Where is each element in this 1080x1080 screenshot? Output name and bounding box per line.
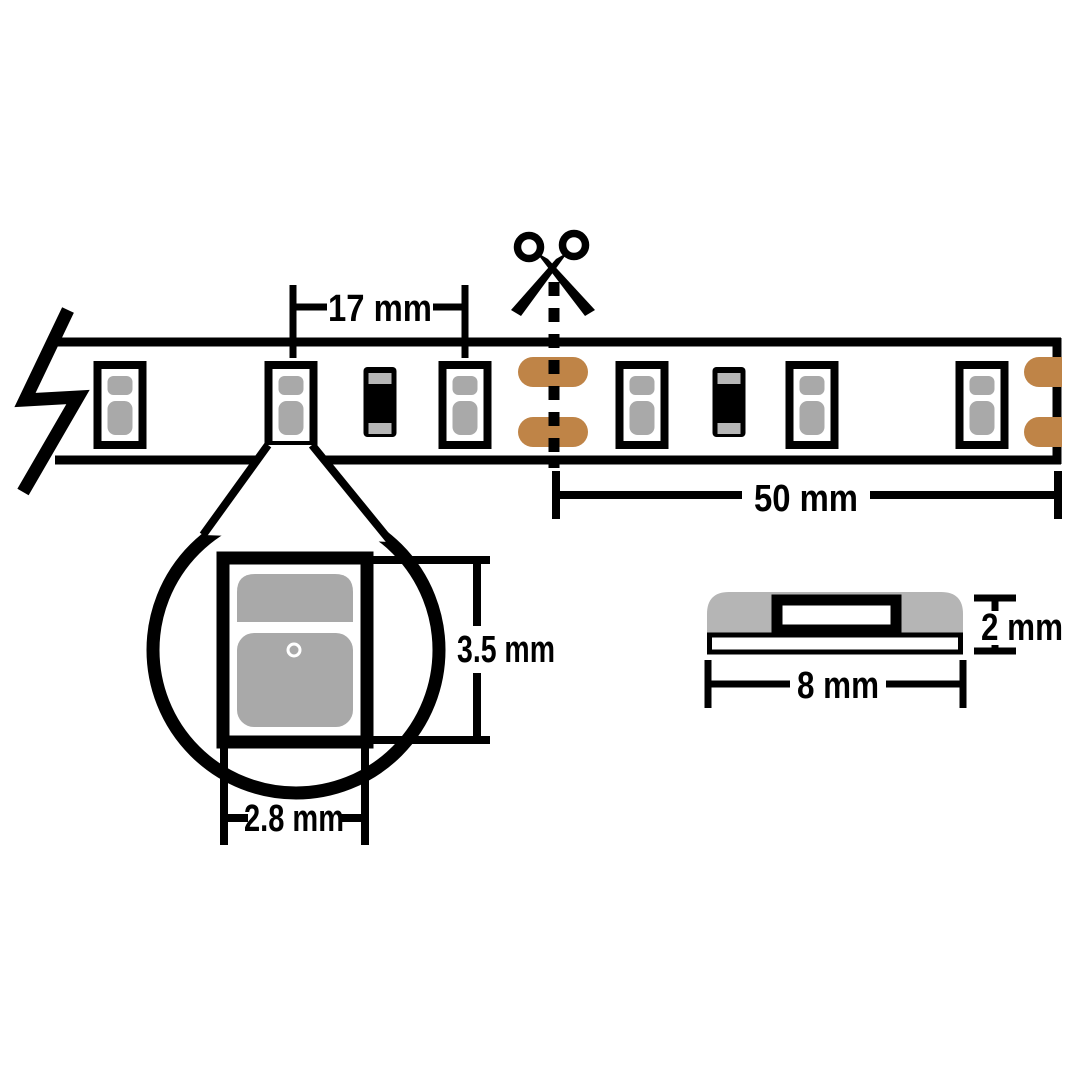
dimension-profile-width: 8 mm <box>708 660 963 708</box>
led-strip-diagram-page: 17 mm 50 mm 3.5 mm <box>0 0 1080 1080</box>
led-height-label: 3.5 mm <box>457 629 555 671</box>
cut-length-label: 50 mm <box>754 478 858 520</box>
profile-width-label: 8 mm <box>797 665 879 707</box>
resistor-component <box>364 367 397 437</box>
profile-height-label: 2 mm <box>981 607 1063 649</box>
strip-break-icon <box>23 310 78 492</box>
led-component <box>790 365 835 445</box>
led-width-label: 2.8 mm <box>244 798 344 840</box>
led-component <box>443 365 488 445</box>
profile-pcb <box>710 635 961 652</box>
magnified-led <box>223 558 367 742</box>
profile-led-chip <box>777 600 896 630</box>
strip-view: 17 mm 50 mm <box>23 234 1062 521</box>
pitch-label: 17 mm <box>328 288 432 330</box>
led-component-magnified-source <box>269 365 314 445</box>
end-pad <box>1024 417 1062 447</box>
strip-components <box>98 357 1063 447</box>
end-pad <box>1024 357 1062 387</box>
led-component <box>620 365 665 445</box>
dimension-profile-height: 2 mm <box>974 598 1063 651</box>
magnified-led-top-pad <box>237 574 353 622</box>
dimension-cut-length: 50 mm <box>556 471 1058 520</box>
magnifier-view: 3.5 mm 2.8 mm <box>153 445 555 845</box>
magnified-led-bottom-pad <box>237 633 353 727</box>
resistor-component <box>713 367 746 437</box>
dimension-pitch: 17 mm <box>293 285 465 358</box>
led-component <box>960 365 1005 445</box>
led-strip-diagram: 17 mm 50 mm 3.5 mm <box>0 0 1080 1080</box>
scissors-icon <box>511 234 595 317</box>
profile-view: 2 mm 8 mm <box>707 592 1063 708</box>
led-component <box>98 365 143 445</box>
